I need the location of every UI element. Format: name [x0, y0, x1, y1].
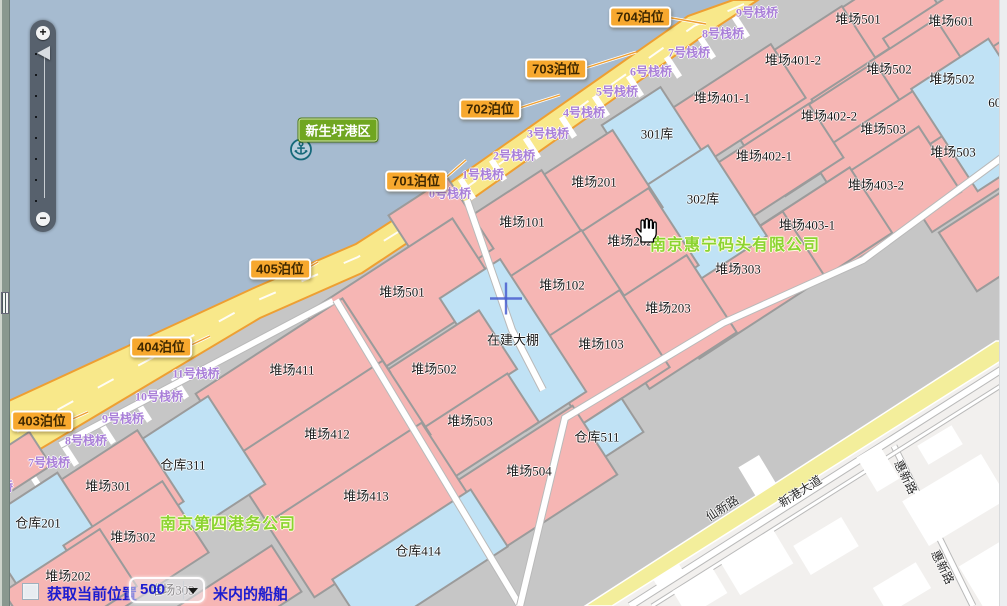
berth-badge[interactable]: 703泊位	[525, 59, 587, 80]
range-select-divider	[183, 581, 184, 599]
berth-badge[interactable]: 404泊位	[130, 337, 192, 358]
berth-badge[interactable]: 405泊位	[249, 259, 311, 280]
berth-badge[interactable]: 403泊位	[11, 411, 73, 432]
panel-collapse-grip[interactable]	[1, 292, 9, 314]
zoom-tick	[35, 95, 37, 97]
map-canvas[interactable]	[0, 0, 1007, 606]
berth-badge[interactable]: 704泊位	[609, 7, 671, 28]
left-panel-edge	[0, 0, 10, 606]
right-panel-edge	[999, 0, 1007, 606]
zoom-tick	[35, 158, 37, 160]
berth-badge[interactable]: 702泊位	[459, 99, 521, 120]
port-area-badge[interactable]: 新生圩港区	[298, 119, 377, 142]
zoom-slider: + −	[30, 20, 56, 232]
chevron-down-icon[interactable]	[188, 588, 198, 594]
zoom-tick	[35, 137, 37, 139]
zoom-tick	[35, 74, 37, 76]
map-application: 堆场501堆场601堆场401-2堆场502堆场502堆场401-1堆场402-…	[0, 0, 1007, 606]
range-select[interactable]: 500	[129, 577, 205, 603]
zoom-in-button[interactable]: +	[36, 26, 50, 40]
zoom-tick	[35, 200, 37, 202]
zoom-tick	[35, 179, 37, 181]
get-location-label: 获取当前位置	[47, 583, 137, 604]
zoom-out-button[interactable]: −	[36, 212, 50, 226]
zoom-slider-handle[interactable]	[37, 46, 50, 60]
anchor-marker-icon[interactable]	[289, 138, 313, 167]
berth-badge[interactable]: 701泊位	[385, 171, 447, 192]
zoom-tick	[35, 116, 37, 118]
range-select-value: 500	[140, 581, 165, 598]
range-suffix-label: 米内的船舶	[213, 583, 288, 604]
get-location-checkbox[interactable]	[22, 583, 39, 600]
zoom-slider-track[interactable]	[44, 52, 45, 198]
bottom-control-bar: 获取当前位置 500 米内的船舶	[0, 576, 1007, 606]
